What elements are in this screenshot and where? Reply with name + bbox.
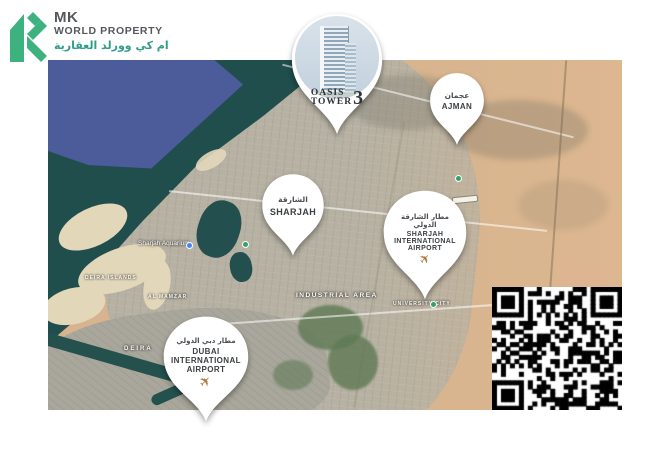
airplane-icon: ✈ — [417, 251, 434, 268]
pin-sharjah-airport-en2: INTERNATIONAL — [394, 238, 456, 245]
pin-ajman: عجمان AJMAN — [429, 72, 485, 146]
poi-marker-green — [242, 241, 249, 248]
poi-marker-blue — [186, 242, 193, 249]
property-name-line2: TOWER — [311, 98, 352, 108]
scrub-patch — [518, 180, 608, 230]
vegetation-patch — [328, 335, 378, 390]
vegetation-patch — [273, 360, 313, 390]
property-number: 3 — [353, 89, 363, 107]
building-photo — [295, 16, 380, 99]
brand-name-arabic: ام كي وورلد العقارية — [54, 40, 169, 52]
poi-marker-green — [455, 175, 462, 182]
qr-code — [492, 287, 622, 410]
pin-dubai-airport-en1: DUBAI — [192, 347, 219, 356]
pin-dubai-airport-en3: AIRPORT — [187, 365, 226, 374]
map-label-deira-islands: DEIRA ISLANDS — [85, 275, 137, 281]
poi-marker-green — [430, 301, 437, 308]
pin-sharjah: الشارقة SHARJAH — [261, 173, 325, 257]
pin-ajman-english: AJMAN — [442, 102, 472, 111]
map-label-aquarium: Sharjah Aquarium — [138, 240, 190, 247]
flyer-canvas: MK WORLD PROPERTY ام كي وورلد العقارية — [0, 0, 668, 452]
pin-sharjah-arabic: الشارقة — [278, 195, 308, 204]
mk-logo-icon — [8, 10, 48, 62]
tower-illustration — [320, 26, 348, 94]
pin-sharjah-airport-en1: SHARJAH — [407, 231, 444, 238]
pin-sharjah-airport: مطار الشارقة الدولي SHARJAH INTERNATIONA… — [382, 189, 468, 301]
pin-ajman-arabic: عجمان — [445, 91, 470, 100]
map-label-deira: DEIRA — [124, 346, 153, 352]
map-label-industrial-area: INDUSTRIAL AREA — [296, 292, 378, 299]
pin-sharjah-airport-arabic2: الدولي — [413, 221, 436, 229]
brand-name: WORLD PROPERTY — [54, 26, 169, 37]
qr-code-canvas — [492, 287, 622, 410]
map-label-al-mamzar: AL MAMZAR — [148, 294, 187, 300]
pin-oasis-tower: OASIS TOWER 3 — [290, 12, 384, 136]
pin-dubai-airport-arabic: مطار دبي الدولي — [176, 337, 235, 345]
property-title: OASIS TOWER 3 — [290, 89, 384, 108]
pin-sharjah-english: SHARJAH — [270, 207, 316, 217]
airplane-icon: ✈ — [197, 372, 215, 390]
pin-dubai-airport: مطار دبي الدولي DUBAI INTERNATIONAL AIRP… — [162, 315, 250, 423]
map-label-university-city: UNIVERSITY CITY — [393, 301, 451, 307]
pin-sharjah-airport-arabic1: مطار الشارقة — [401, 213, 449, 221]
brand-logo: MK WORLD PROPERTY ام كي وورلد العقارية — [8, 10, 169, 62]
brand-initials: MK — [54, 10, 169, 26]
pin-dubai-airport-en2: INTERNATIONAL — [171, 356, 241, 365]
